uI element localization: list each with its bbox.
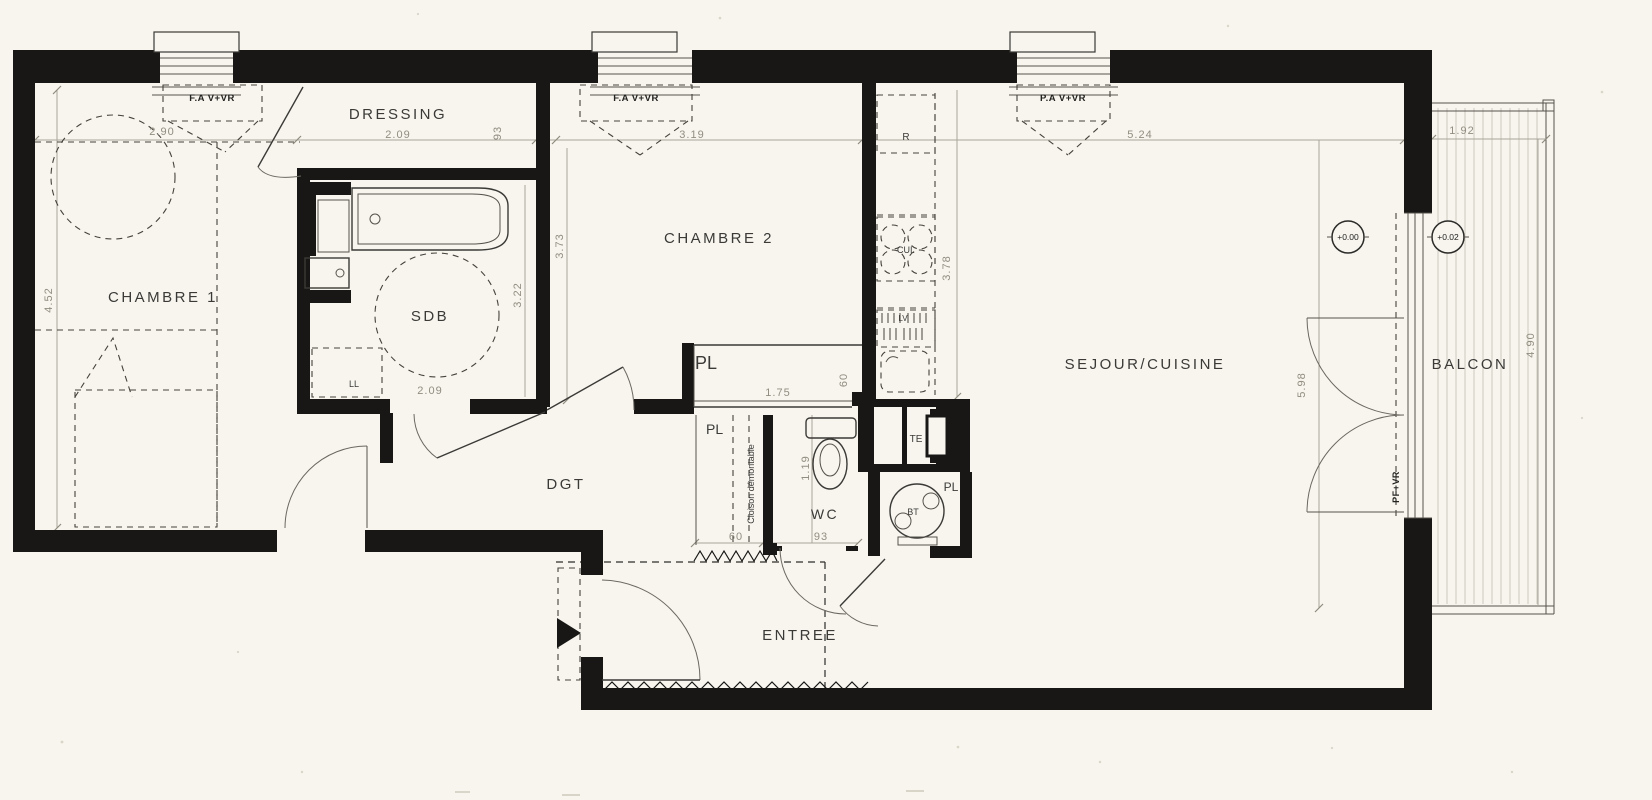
label-electrical: TE <box>910 434 923 445</box>
label-window2: F.A V+VR <box>613 93 659 104</box>
label-hob: CUI. <box>897 245 915 255</box>
dim-chambre2-width: 3.19 <box>679 129 704 141</box>
dim-placard-depth: 60 <box>838 373 850 387</box>
electrical-panel <box>927 416 947 456</box>
label-french-window: PF+VR <box>1391 471 1401 503</box>
label-chambre2: CHAMBRE 2 <box>664 230 774 247</box>
dim-placard-width: 1.75 <box>765 387 790 399</box>
dim-wc-height: 1.19 <box>800 455 812 480</box>
label-washing-machine: LL <box>349 379 359 389</box>
dim-wc-width: 93 <box>814 531 828 543</box>
dim-dressing-width: 2.09 <box>385 129 410 141</box>
label-entree: ENTREE <box>762 627 838 644</box>
dim-balcon-height: 4.90 <box>1525 332 1537 357</box>
dim-cloison-width: 60 <box>729 531 743 543</box>
level-interior-value: +0.00 <box>1337 232 1359 242</box>
label-window3: P.A V+VR <box>1040 93 1086 104</box>
floor-plan-page: +0.00 +0.02 CHAMBRE 1 DRESSING SDB CHAMB… <box>0 0 1652 800</box>
dim-chambre1-width: 2.90 <box>149 126 174 138</box>
label-cloison: Cloison démontable <box>746 444 756 524</box>
label-boiler: BT <box>907 507 919 517</box>
label-window1: F.A V+VR <box>189 93 235 104</box>
label-wc: WC <box>811 506 839 522</box>
dim-sejour-height: 5.98 <box>1296 372 1308 397</box>
label-sdb: SDB <box>411 308 449 325</box>
label-placard2: PL <box>706 421 723 437</box>
label-dressing: DRESSING <box>349 106 447 123</box>
floor-plan: +0.00 +0.02 CHAMBRE 1 DRESSING SDB CHAMB… <box>0 0 1652 800</box>
dim-kitchen-height: 3.78 <box>941 255 953 280</box>
label-placard3: PL <box>944 480 959 494</box>
label-sejour: SEJOUR/CUISINE <box>1065 356 1226 373</box>
dim-sdb-width: 2.09 <box>417 385 442 397</box>
label-placard1: PL <box>695 353 717 373</box>
label-dgt: DGT <box>546 476 585 493</box>
label-chambre1: CHAMBRE 1 <box>108 289 218 306</box>
label-fridge: R <box>902 132 909 143</box>
dim-balcon-width: 1.92 <box>1449 125 1474 137</box>
label-balcon: BALCON <box>1432 356 1509 373</box>
dim-chambre2-height: 3.73 <box>554 233 566 258</box>
dim-sejour-width: 5.24 <box>1127 129 1152 141</box>
label-dishwasher: LV <box>898 314 908 323</box>
dim-chambre1-height: 4.52 <box>43 287 55 312</box>
level-balcony-value: +0.02 <box>1437 232 1459 242</box>
dim-wall-93: 93 <box>492 126 504 140</box>
dim-sdb-height: 3.22 <box>512 282 524 307</box>
